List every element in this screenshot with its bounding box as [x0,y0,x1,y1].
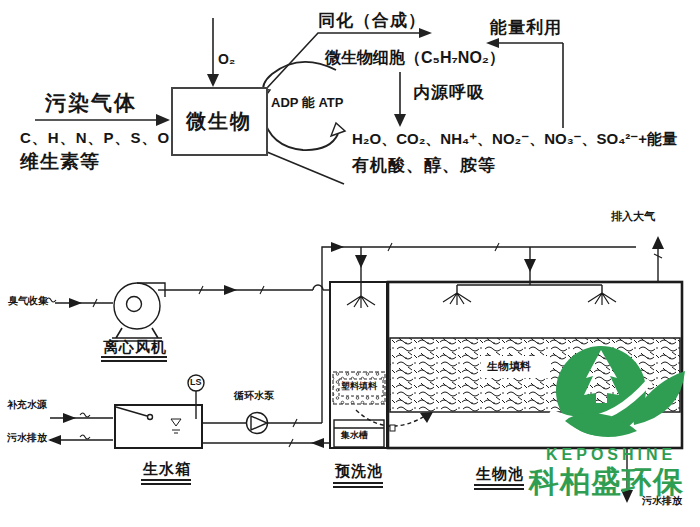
vitamins-label: 维生素等 [20,152,100,173]
prewash-packing-label: 塑料填料 [341,382,377,392]
microbe-box-label: 微生物 [186,110,252,132]
bio-packing-label: 生物填料 [487,360,531,372]
oxygen-label: O₂ [218,52,235,67]
bio-pool-label: 生物池 [476,466,524,483]
energy-use-label: 能量利用 [490,19,562,38]
to-atmosphere-label: 排入大气 [611,210,655,222]
polluted-gas-label: 污染气体 [45,91,137,114]
water-tank-box [115,405,202,448]
prewash-pool-label: 预洗池 [335,463,383,480]
endogenous-respiration-label: 内源呼吸 [413,84,485,103]
level-switch-tag: LS [190,378,202,388]
products-label: H₂O、CO₂、NH₄⁺、NO₂⁻、NO₃⁻、SO₄²⁻+能量 [352,131,677,148]
water-tank-label: 生水箱 [143,461,191,478]
pump-label: 循环水泵 [234,390,274,401]
logo-wordmark-zh: 科柏盛环保 [529,462,684,503]
microbial-cells-label: 微生物细胞（C₅H₇NO₂） [325,49,505,67]
fan-housing [114,283,160,329]
fan-label: 离心风机 [103,339,167,356]
adp-atp-label: ADP 能 ATP [271,96,343,110]
makeup-water-label: 补充水源 [7,399,47,410]
sump-label: 集水槽 [341,431,368,441]
odor-inlet-label: 臭气收集 [8,295,48,306]
assimilation-label: 同化（合成） [318,12,426,31]
pump-icon [247,413,268,434]
tank-drain-label: 污水排放 [7,432,47,443]
biofilter-process-diagram: 同化（合成） 能量利用 微生物细胞（C₅H₇NO₂） 内源呼吸 污染气体 O₂ … [0,0,700,527]
elements-label: C、H、N、P、S、O [20,130,170,147]
organics-label: 有机酸、醇、胺等 [352,157,496,176]
